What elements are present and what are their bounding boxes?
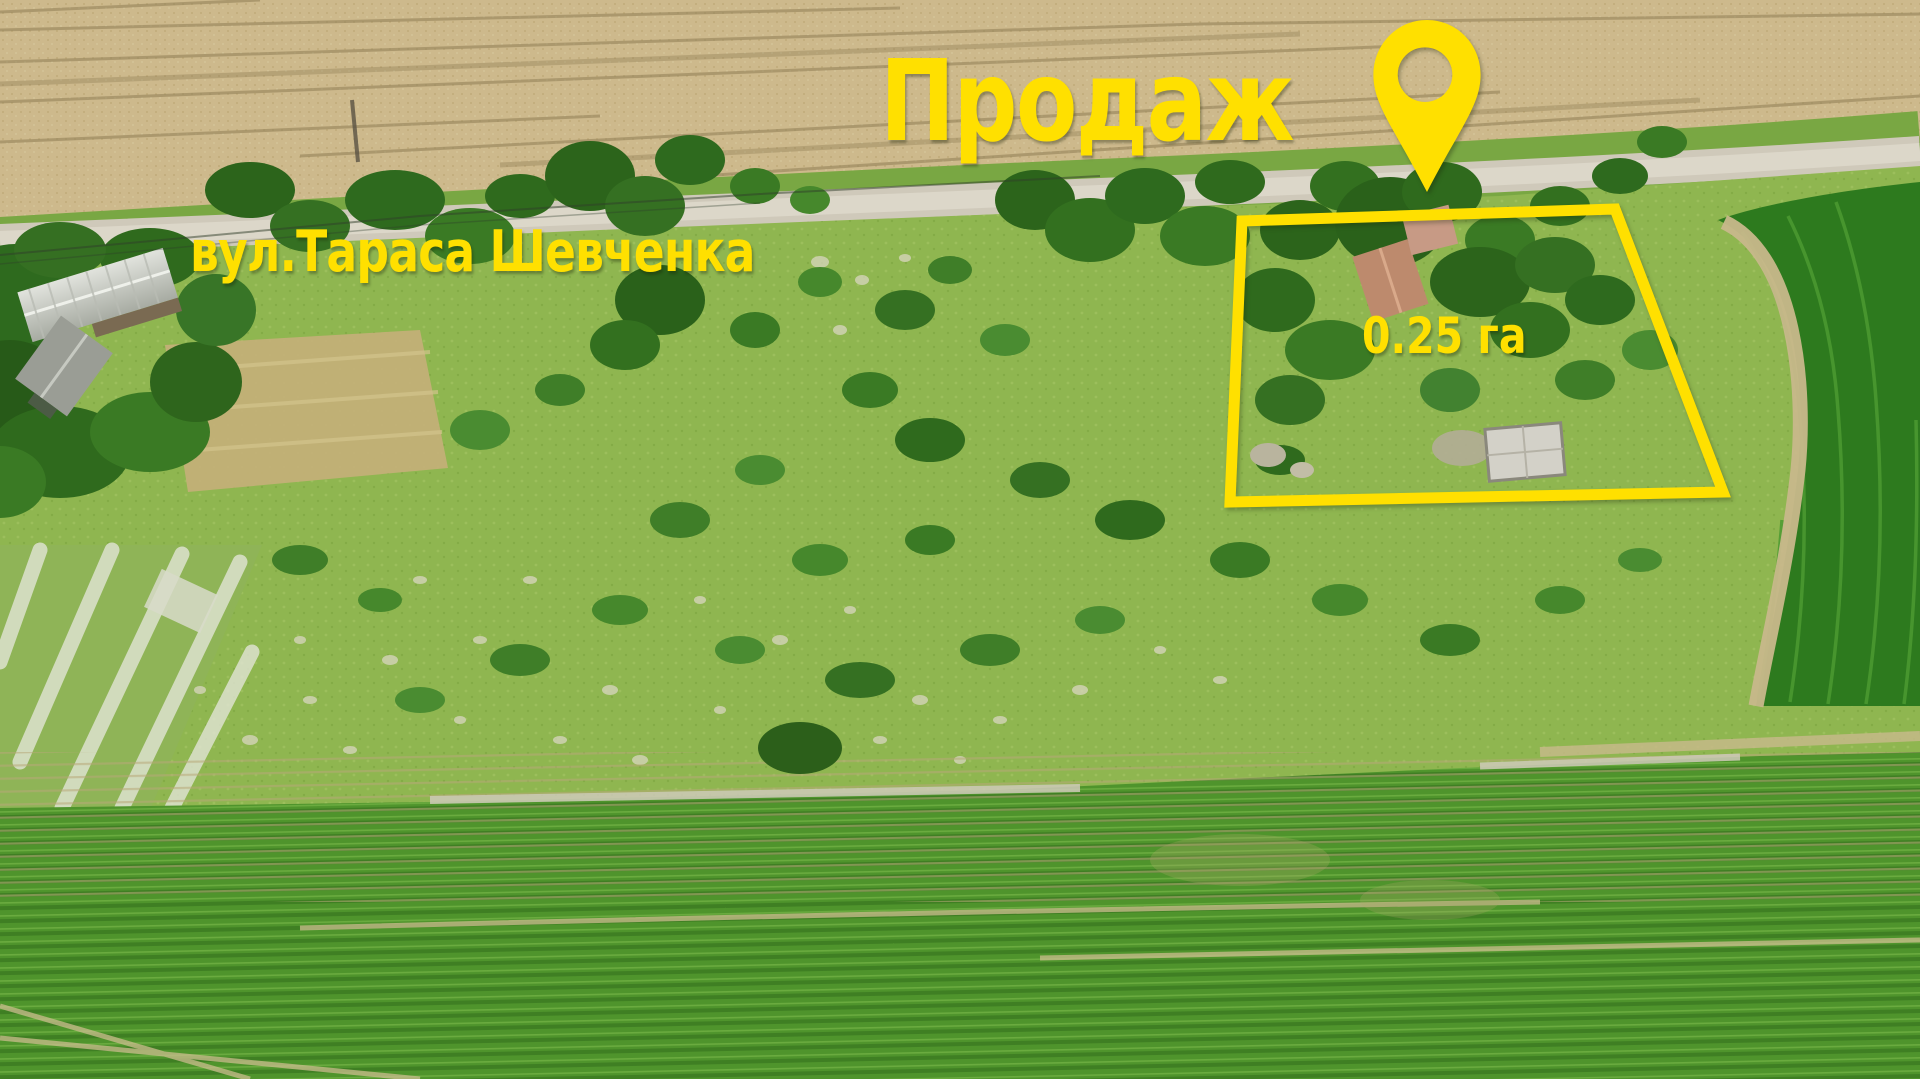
street-label: вул.Тараса Шевченка	[190, 224, 755, 281]
sale-title: Продаж	[880, 46, 1293, 158]
location-pin-shape	[1373, 20, 1480, 192]
plot-area-label: 0.25 га	[1362, 311, 1527, 361]
location-pin-icon	[1372, 20, 1482, 192]
aerial-photo: Продаж вул.Тараса Шевченка 0.25 га	[0, 0, 1920, 1079]
